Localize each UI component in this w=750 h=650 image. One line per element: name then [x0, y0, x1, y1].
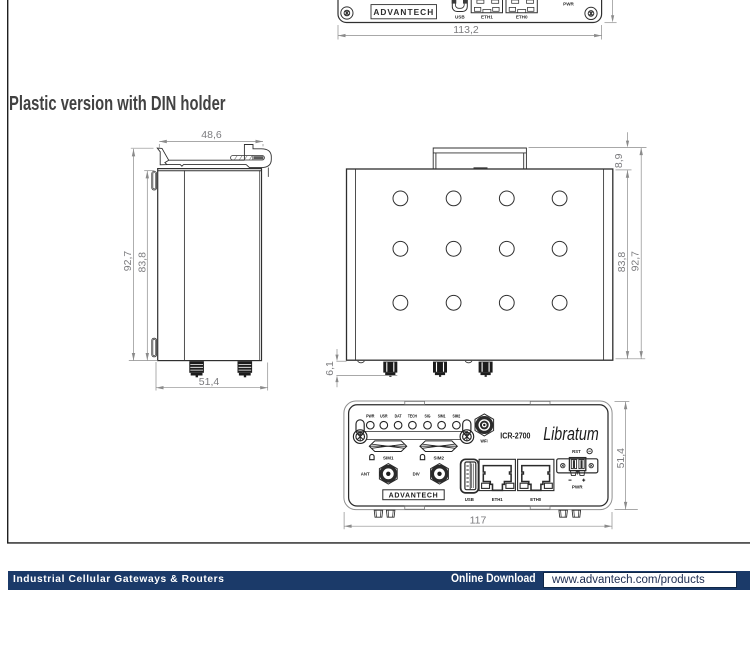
svg-text:SIG: SIG	[424, 414, 430, 418]
svg-text:SIM2: SIM2	[434, 455, 445, 460]
svg-text:USR: USR	[380, 414, 388, 418]
svg-text:SIM1: SIM1	[438, 414, 446, 418]
svg-text:ANT: ANT	[361, 472, 370, 477]
svg-text:TECH: TECH	[408, 414, 417, 418]
svg-text:PWR: PWR	[572, 485, 583, 490]
svg-text:USB: USB	[465, 497, 474, 502]
svg-text:WiFi: WiFi	[480, 439, 487, 443]
svg-text:ETH1: ETH1	[481, 15, 493, 20]
svg-text:113,2: 113,2	[453, 24, 479, 36]
svg-text:DIV: DIV	[413, 472, 420, 477]
svg-text:8,9: 8,9	[613, 153, 625, 168]
svg-text:ETH1: ETH1	[492, 497, 504, 502]
svg-text:Libratum: Libratum	[543, 424, 599, 444]
svg-text:ETH0: ETH0	[516, 15, 528, 20]
svg-text:USB: USB	[455, 15, 465, 20]
svg-text:83,8: 83,8	[616, 252, 628, 273]
svg-text:92,7: 92,7	[630, 251, 642, 272]
svg-text:117: 117	[470, 514, 487, 526]
svg-text:92,7: 92,7	[122, 251, 134, 272]
svg-text:48,6: 48,6	[201, 129, 222, 141]
svg-text:51,4: 51,4	[199, 376, 220, 388]
svg-text:6,1: 6,1	[324, 361, 336, 376]
svg-text:ICR-2700: ICR-2700	[500, 431, 530, 441]
svg-text:PWR: PWR	[366, 414, 374, 418]
svg-text:83,8: 83,8	[136, 252, 148, 273]
svg-text:PWR: PWR	[563, 2, 574, 7]
svg-text:51,4: 51,4	[615, 448, 627, 469]
svg-text:ADVANTECH: ADVANTECH	[389, 492, 439, 499]
svg-text:ADVANTECH: ADVANTECH	[373, 7, 434, 17]
svg-text:RST: RST	[572, 449, 581, 454]
svg-text:SIM2: SIM2	[453, 414, 461, 418]
svg-text:SIM1: SIM1	[383, 455, 394, 460]
svg-text:DAT: DAT	[395, 414, 403, 418]
svg-text:ETH0: ETH0	[530, 497, 542, 502]
